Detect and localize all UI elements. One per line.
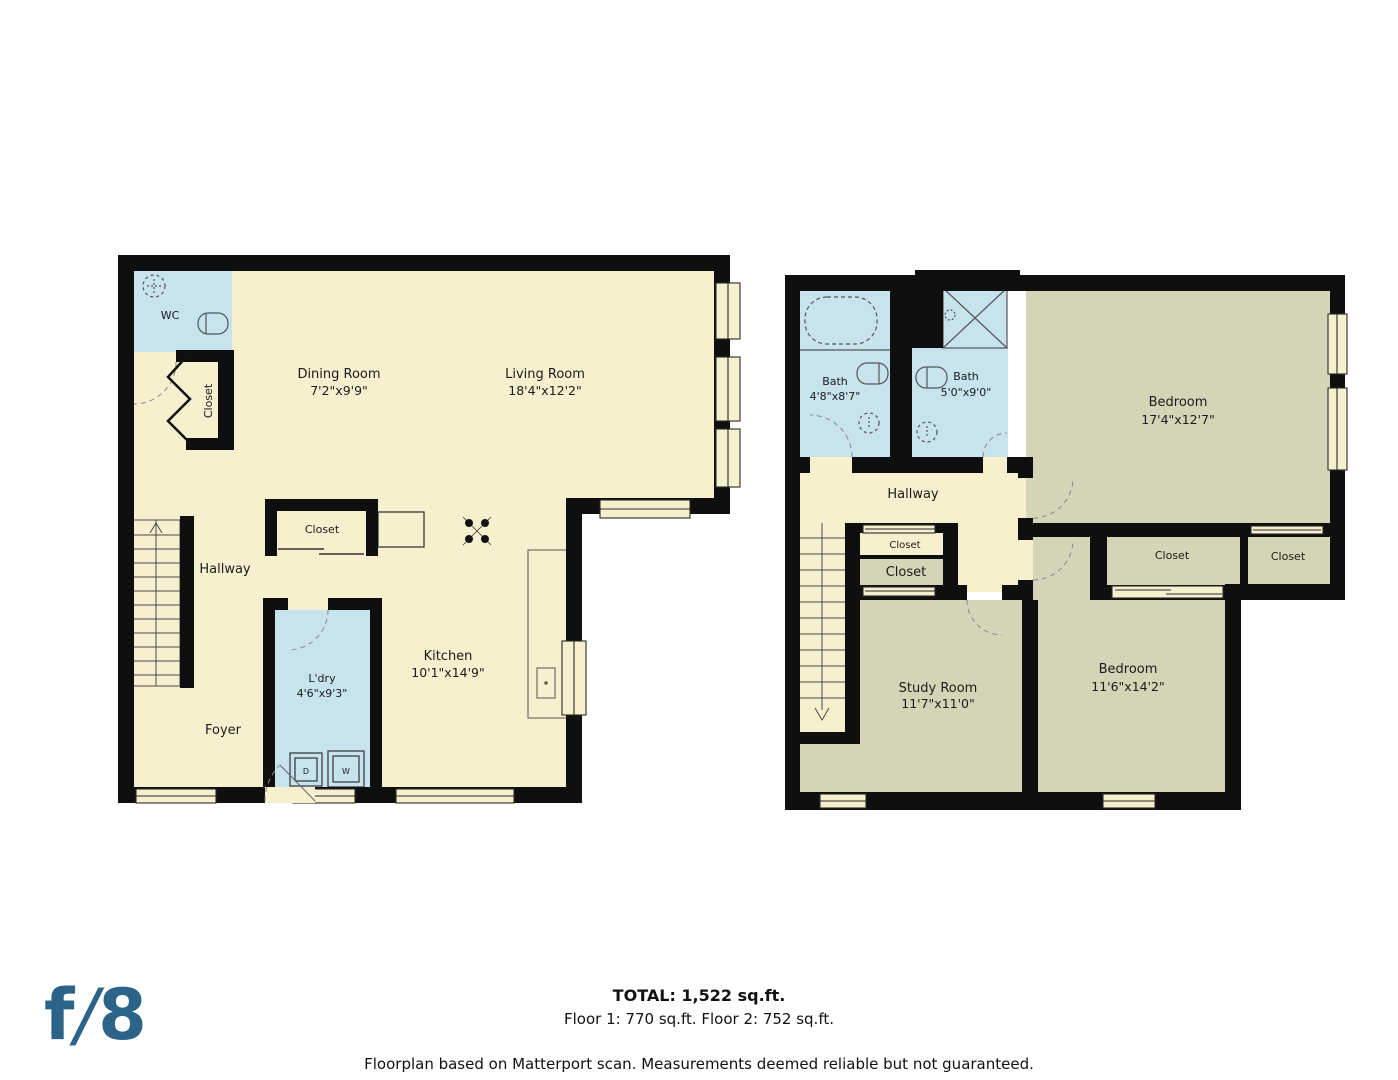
stairs-up-icon — [132, 520, 180, 686]
floor1-plan: D W — [118, 253, 748, 811]
living-room-dims: 18'4"x12'2" — [508, 383, 582, 398]
bedroom2-room — [1033, 600, 1225, 794]
bedroom1-window-1 — [1328, 314, 1347, 374]
kitchen-bottom-window — [396, 789, 514, 803]
closet-d-sliding-door — [1251, 526, 1323, 534]
floor2-svg: Bath 4'8"x8'7" Bath 5'0"x9'0" Bedroom 17… — [785, 270, 1350, 815]
laundry-label: L'dry — [308, 672, 336, 685]
dryer-label: D — [303, 767, 309, 776]
study-bottom-window — [820, 794, 866, 808]
closet-d-label: Closet — [1271, 550, 1306, 563]
bedroom2-bottom-window — [1103, 794, 1155, 808]
washer-label: W — [342, 767, 350, 776]
disclaimer-text: Floorplan based on Matterport scan. Meas… — [0, 1055, 1398, 1073]
living-bottom-window — [600, 500, 690, 518]
hall-closet-label: Closet — [202, 383, 215, 418]
closet-c-label: Closet — [1155, 549, 1190, 562]
kitchen-closet-label: Closet — [305, 523, 340, 536]
closet-b-sliding-door — [863, 587, 935, 596]
bedroom1-dims: 17'4"x12'7" — [1141, 412, 1215, 427]
wc-room — [134, 269, 232, 352]
dining-room-dims: 7'2"x9'9" — [310, 383, 368, 398]
hallway-label-f2: Hallway — [887, 487, 939, 502]
living-room-label: Living Room — [505, 367, 585, 382]
living-window-2 — [716, 357, 740, 421]
closet-b-label: Closet — [886, 565, 927, 580]
closet-a-sliding-door — [863, 525, 935, 533]
kitchen-dims: 10'1"x14'9" — [411, 665, 485, 680]
kitchen-label: Kitchen — [424, 649, 473, 664]
closet-c-sliding-door — [1112, 586, 1223, 598]
foyer-label: Foyer — [205, 723, 242, 738]
wc-label: WC — [161, 309, 180, 322]
laundry-dims: 4'6"x9'3" — [297, 687, 348, 700]
bedroom1-window-2 — [1328, 388, 1347, 470]
bath1-label: Bath — [822, 375, 848, 388]
bath2-dims: 5'0"x9'0" — [941, 386, 992, 399]
foyer-bottom-window — [136, 789, 216, 803]
study-room-label: Study Room — [899, 681, 978, 696]
kitchen-side-window — [562, 641, 586, 715]
bath2-label: Bath — [953, 370, 979, 383]
dining-room-label: Dining Room — [297, 367, 380, 382]
bath2-room — [912, 348, 1008, 457]
floor-areas-text: Floor 1: 770 sq.ft. Floor 2: 752 sq.ft. — [0, 1010, 1398, 1028]
closet-a-label: Closet — [889, 540, 920, 551]
bedroom1-label: Bedroom — [1149, 395, 1208, 410]
total-area-text: TOTAL: 1,522 sq.ft. — [0, 986, 1398, 1005]
floor2-plan: Bath 4'8"x8'7" Bath 5'0"x9'0" Bedroom 17… — [785, 270, 1350, 815]
floor1-svg: D W — [118, 253, 748, 811]
living-window-3 — [716, 429, 740, 487]
study-room-dims: 11'7"x11'0" — [901, 696, 975, 711]
bedroom2-dims: 11'6"x14'2" — [1091, 679, 1165, 694]
bedroom2-label: Bedroom — [1099, 662, 1158, 677]
living-window-1 — [716, 283, 740, 339]
hallway-label-f1: Hallway — [199, 562, 251, 577]
bath1-dims: 4'8"x8'7" — [810, 390, 861, 403]
